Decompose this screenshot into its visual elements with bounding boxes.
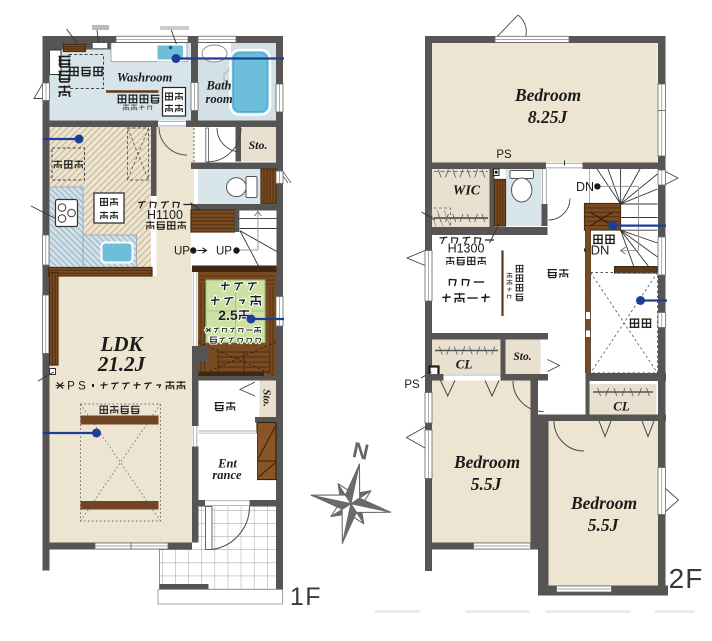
svg-text:Washroom: Washroom — [117, 71, 173, 85]
svg-text:CL: CL — [456, 357, 473, 372]
svg-text:PS: PS — [496, 149, 512, 161]
svg-text:1F: 1F — [290, 583, 322, 611]
svg-text:2F: 2F — [669, 563, 704, 594]
svg-text:Bedroom: Bedroom — [514, 85, 581, 105]
svg-text:2.5: 2.5 — [218, 307, 238, 323]
svg-text:PS: PS — [404, 379, 420, 391]
svg-text:Sto.: Sto. — [513, 351, 531, 363]
svg-text:UP: UP — [216, 246, 232, 258]
svg-text:DN: DN — [576, 180, 594, 194]
svg-text:CL: CL — [613, 399, 630, 414]
svg-text:5.5J: 5.5J — [588, 515, 620, 535]
svg-text:rance: rance — [212, 468, 242, 482]
svg-text:Bedroom: Bedroom — [453, 452, 520, 472]
svg-text:Bedroom: Bedroom — [570, 493, 637, 513]
svg-text:UP: UP — [174, 246, 190, 258]
svg-text:H1300: H1300 — [448, 242, 485, 256]
svg-text:Sto.: Sto. — [261, 389, 273, 406]
svg-text:5.5J: 5.5J — [471, 474, 503, 494]
svg-text:room: room — [205, 92, 232, 106]
svg-text:H1100: H1100 — [147, 208, 183, 222]
svg-text:WIC: WIC — [453, 184, 481, 199]
svg-text:P: P — [67, 381, 75, 393]
svg-text:DN: DN — [591, 243, 610, 258]
svg-text:8.25J: 8.25J — [528, 107, 569, 127]
svg-text:Bath: Bath — [205, 79, 231, 93]
svg-text:21.2J: 21.2J — [97, 352, 147, 376]
svg-text:Sto.: Sto. — [248, 138, 267, 152]
svg-text:S: S — [78, 381, 86, 393]
